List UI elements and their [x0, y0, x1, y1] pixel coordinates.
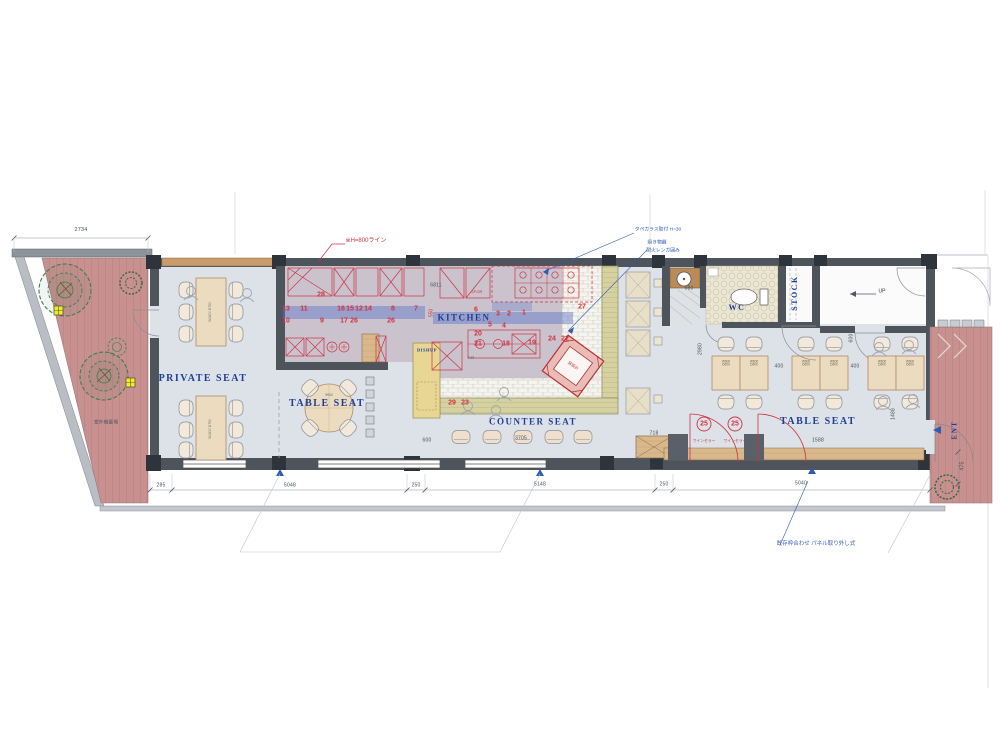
two-top-tables: [712, 356, 924, 390]
equipment-number: 4: [502, 322, 506, 329]
equipment-number: 10: [282, 317, 290, 324]
note-firebrick: 耐火レンガ囲み: [646, 248, 680, 253]
table-size-label: W600 D600: [906, 361, 914, 368]
table-size-label: W1800 D750: [209, 419, 213, 439]
dimension-label: 250: [660, 482, 669, 487]
dimension-label: 550: [429, 309, 434, 317]
equipment-number: 25: [700, 420, 708, 427]
equipment-number: 17: [340, 317, 348, 324]
table-size-label: W1800 D750: [209, 302, 213, 322]
equipment-number: 3: [496, 310, 500, 317]
equipment-number: 18: [502, 340, 510, 347]
floor-plan-canvas: PRIVATE SEAT TABLE SEAT KITCHEN DISHUP C…: [0, 0, 1000, 750]
equipment-number: 19: [528, 339, 536, 346]
dimension-label: 1588: [812, 438, 824, 443]
floor-plan-drawing: [0, 0, 1000, 750]
dimension-label: 680: [685, 286, 694, 291]
equipment-number: 5: [488, 321, 492, 328]
room-label-fr: F/R: [468, 356, 474, 360]
room-label-table-seat-right: TABLE SEAT: [780, 417, 856, 428]
dimension-label: 400: [775, 364, 784, 369]
equipment-number: 27: [578, 303, 586, 310]
equipment-number: 28: [317, 291, 325, 298]
wine-cellar-label: ワインセラー: [693, 439, 716, 443]
table-size-label: W600 D600: [802, 361, 810, 368]
tree-icon: [80, 352, 128, 400]
equipment-number: 12: [355, 305, 363, 312]
equipment-number: 14: [364, 305, 372, 312]
dimension-label: 2734: [74, 228, 87, 234]
round-table-label: Φ900: [325, 394, 333, 398]
table-size-label: W600 D600: [722, 361, 730, 368]
note-h800-line: ※H=800ライン: [346, 238, 387, 244]
equipment-number: 2: [507, 310, 511, 317]
equipment-number: 25: [731, 420, 739, 427]
room-label-counter-seat: COUNTER SEAT: [489, 417, 577, 426]
terrace-deck: [12, 249, 152, 506]
dimension-label: 718: [650, 431, 659, 436]
equipment-number: 29: [448, 399, 456, 406]
floor-note-2f2r: 2F/2R: [472, 290, 483, 294]
room-label-ent: ENT: [951, 421, 958, 440]
dimension-label: 475: [960, 462, 965, 471]
equipment-number: 7: [414, 305, 418, 312]
equipment-number: 16: [337, 305, 345, 312]
equipment-number: 21: [474, 340, 482, 347]
wine-cellar-label: ワインセラー: [724, 439, 747, 443]
dimension-label: 5040: [795, 481, 807, 486]
dimension-label: 250: [412, 483, 421, 488]
dimension-label: 1488: [891, 408, 896, 420]
equipment-number: 20: [474, 330, 482, 337]
dimension-label: 5048: [284, 483, 296, 488]
dimension-label: 600: [849, 334, 854, 343]
equipment-number: 26: [387, 317, 395, 324]
room-label-up: UP: [879, 289, 886, 294]
equipment-number: 1: [522, 309, 526, 316]
equipment-number: 6: [474, 306, 478, 313]
note-outdoor-unit: 室外機置場: [94, 420, 118, 425]
dimension-label: 400: [851, 364, 860, 369]
room-label-kitchen: KITCHEN: [437, 313, 490, 322]
equipment-number: 8: [391, 305, 395, 312]
table-size-label: W600 D600: [878, 361, 886, 368]
equipment-number: 26: [350, 317, 358, 324]
equipment-number: 22: [561, 335, 569, 342]
equipment-number: 15: [346, 305, 354, 312]
equipment-number: 24: [548, 335, 556, 342]
tree-icon: [39, 264, 91, 316]
equipment-number: 11: [300, 305, 307, 312]
equipment-number: 9: [320, 317, 324, 324]
equipment-number: 23: [461, 399, 469, 406]
room-label-table-seat-left: TABLE SEAT: [289, 399, 365, 410]
room-label-wc: WC: [729, 304, 746, 312]
window: [183, 460, 546, 468]
dimension-label: 285: [157, 483, 166, 488]
dimension-label: 600: [423, 438, 432, 443]
dimension-label: 6811: [430, 283, 442, 288]
table-size-label: W600 D600: [750, 361, 758, 368]
table-size-label: W600 D600: [830, 361, 838, 368]
note-panel: 既存枠合わせ パネル取り外し式: [777, 542, 856, 548]
note-glass: タペガラス取付 H=30: [635, 227, 681, 232]
equipment-number: 13: [282, 305, 290, 312]
room-label-dishup: DISHUP: [417, 349, 437, 354]
room-label-private-seat: PRIVATE SEAT: [159, 374, 248, 385]
note-grill: 焼き物器: [647, 240, 666, 245]
dimension-label: 3705: [515, 436, 527, 441]
dimension-label: 2980: [698, 343, 703, 355]
room-label-stock: STOCK: [791, 275, 799, 310]
dimension-label: 5148: [534, 482, 546, 487]
entrance-deck: [926, 320, 992, 503]
